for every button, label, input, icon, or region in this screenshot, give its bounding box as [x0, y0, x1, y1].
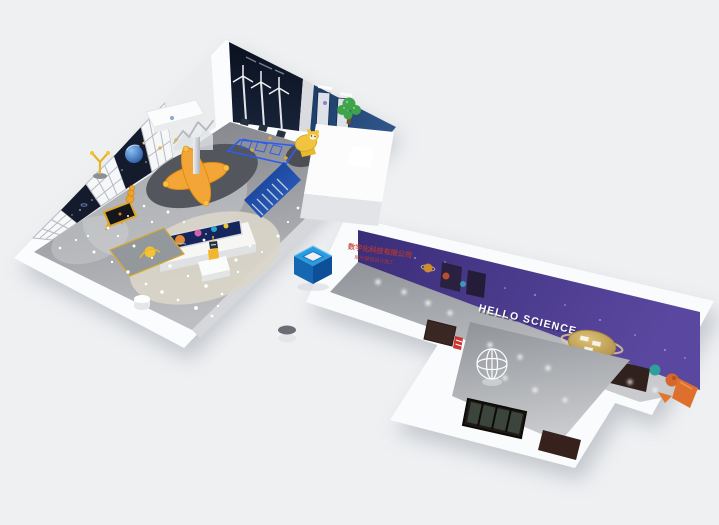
planet-mural [125, 145, 143, 163]
desk-planet-decal [170, 116, 174, 120]
rocket-column [193, 136, 200, 174]
render-canvas: HELLO SCIENCE HELLO SCIENCE [0, 0, 719, 525]
robot-body [208, 248, 219, 260]
yellow-dome [145, 247, 156, 258]
wall-screen [466, 270, 486, 298]
logo-cube-shadow [297, 283, 329, 291]
wall-badge [323, 101, 327, 105]
teal-planet [650, 365, 661, 376]
exhibition-hall-render: HELLO SCIENCE HELLO SCIENCE [0, 0, 719, 525]
